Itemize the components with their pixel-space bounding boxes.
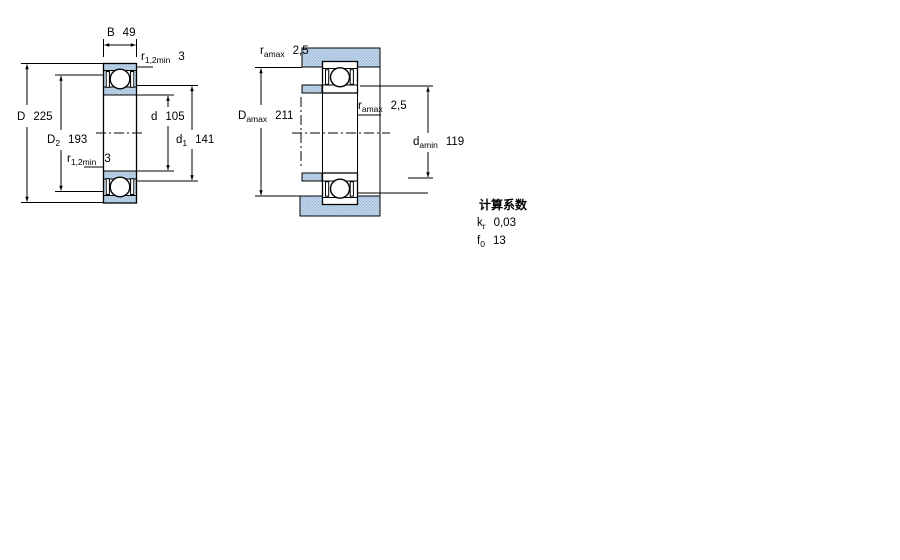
ball-top-right xyxy=(331,68,350,87)
label-r12min-top: r1,2min3 xyxy=(141,51,185,67)
label-ramax-top: ramax2,5 xyxy=(260,45,309,61)
shaft-shoulder-top xyxy=(302,85,322,93)
shaft-shoulder-bottom xyxy=(302,173,322,181)
label-B: B49 xyxy=(107,27,135,43)
label-d: d105 xyxy=(151,111,185,127)
label-Damax: Damax211 xyxy=(238,110,293,126)
ball-bottom-right xyxy=(331,179,350,198)
shield-right-top xyxy=(131,72,134,88)
label-D: D225 xyxy=(17,111,53,127)
calculation-factors-title: 计算系数 xyxy=(479,196,527,213)
label-damin: damin119 xyxy=(413,136,464,152)
label-r12min-bottom: r1,2min3 xyxy=(67,153,111,169)
label-f0: f013 xyxy=(477,235,506,251)
shield-left-top xyxy=(106,72,109,88)
technical-drawing-canvas xyxy=(0,0,900,560)
label-kr: kr0,03 xyxy=(477,217,516,233)
ball-top xyxy=(110,69,130,89)
label-d1: d1141 xyxy=(176,134,214,150)
label-D2: D2193 xyxy=(47,134,87,150)
ball-bottom xyxy=(110,177,130,197)
bearing-drawing-page: B49 r1,2min3 D225 D2193 r1,2min3 d105 d1… xyxy=(0,0,900,560)
label-ramax-mid: ramax2,5 xyxy=(358,100,407,116)
shield-right-bottom xyxy=(131,179,134,195)
shield-left-bottom xyxy=(106,179,109,195)
left-bearing-cross-section xyxy=(96,64,144,204)
right-abutment-diagram xyxy=(292,48,390,216)
